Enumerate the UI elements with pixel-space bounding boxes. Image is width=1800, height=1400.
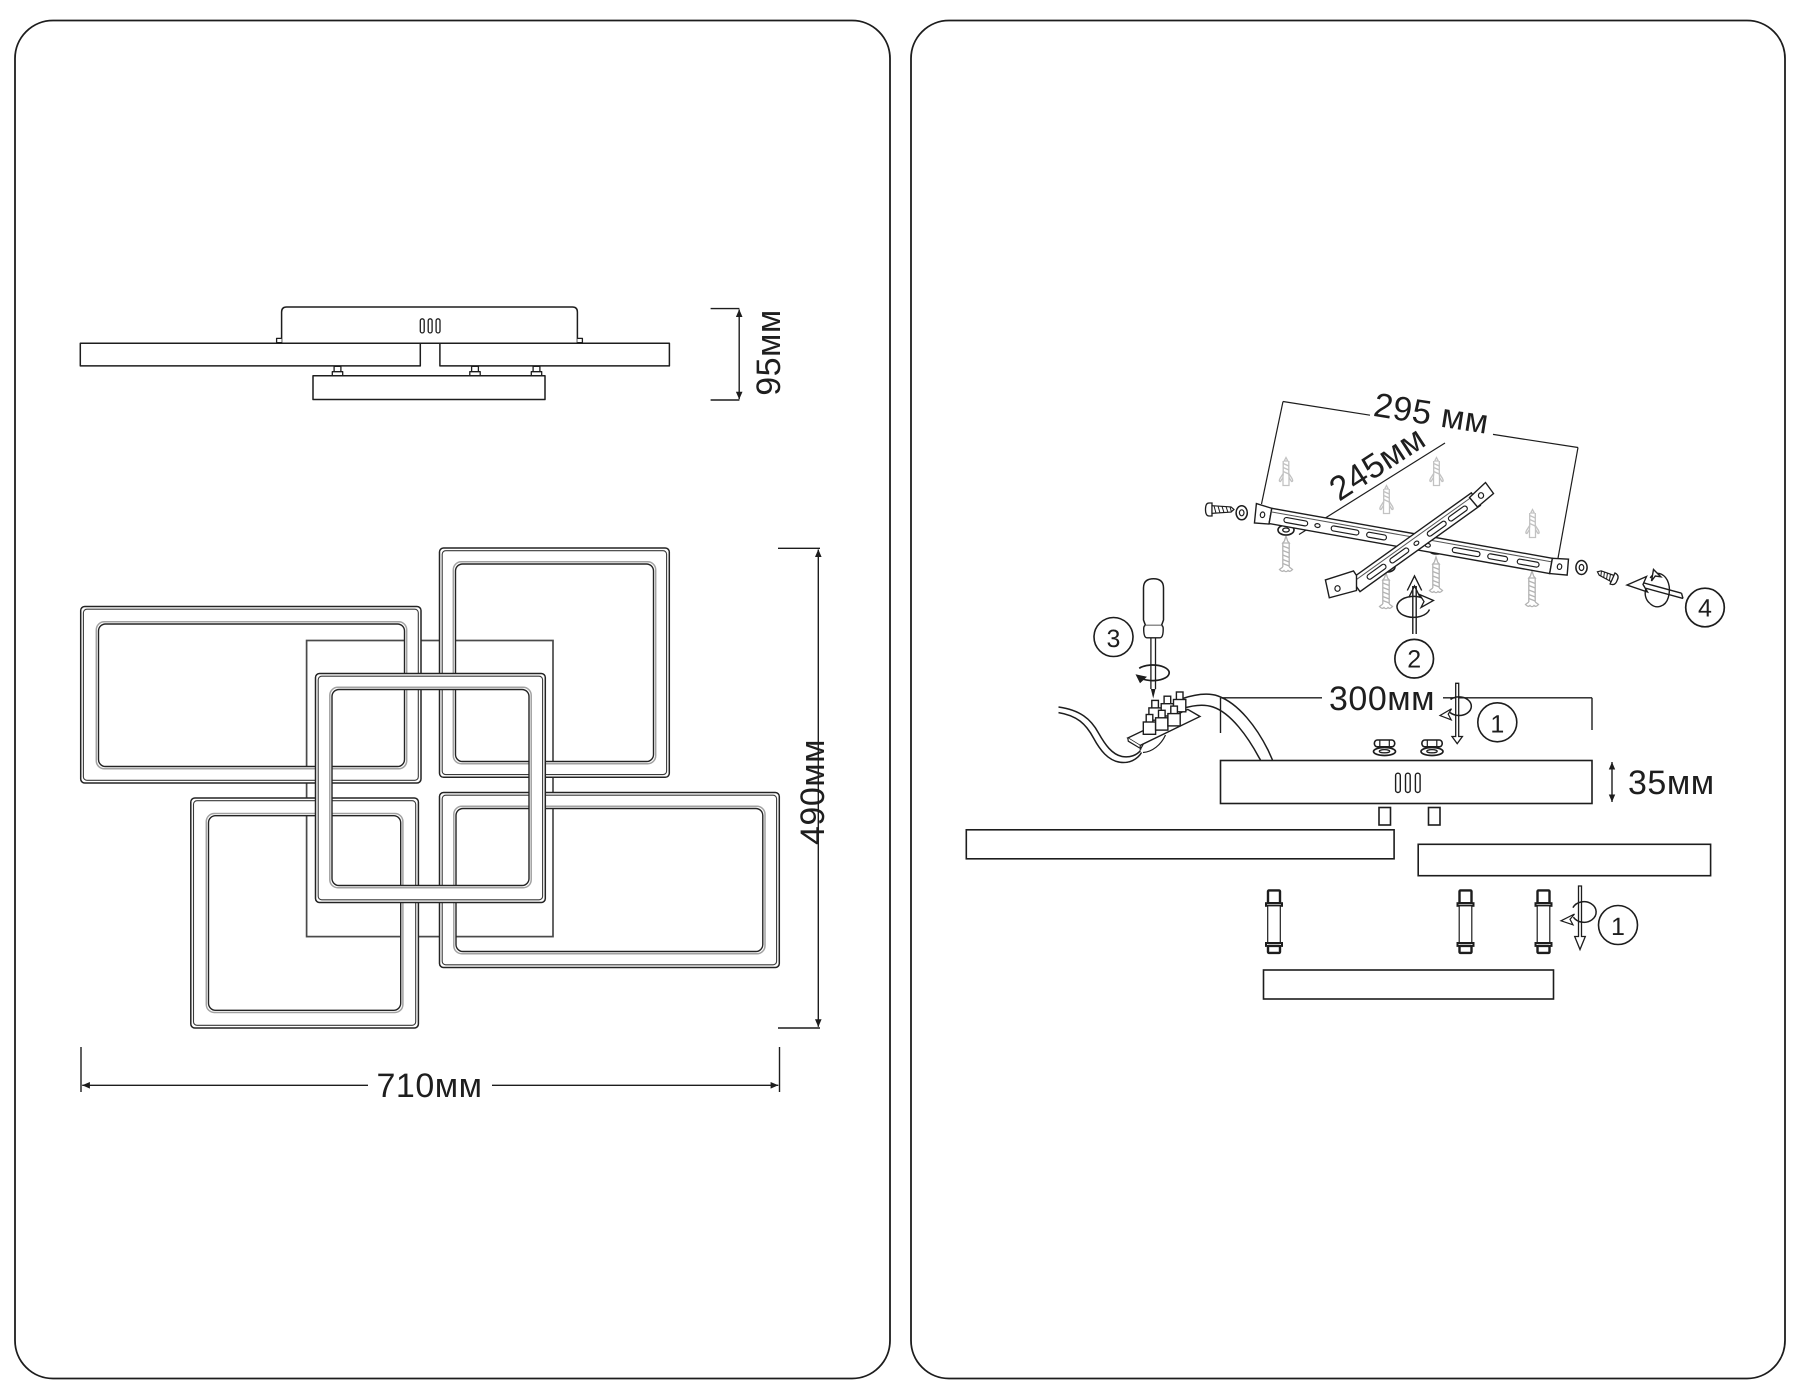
svg-text:3: 3 — [1107, 625, 1121, 653]
svg-text:490мм: 490мм — [794, 739, 832, 845]
svg-text:2: 2 — [1407, 646, 1421, 674]
svg-text:4: 4 — [1698, 595, 1712, 623]
svg-text:300мм: 300мм — [1329, 680, 1435, 718]
svg-text:1: 1 — [1490, 710, 1504, 738]
svg-text:95мм: 95мм — [750, 309, 788, 396]
svg-text:1: 1 — [1611, 913, 1625, 941]
svg-text:710мм: 710мм — [377, 1067, 483, 1105]
svg-text:35мм: 35мм — [1628, 764, 1715, 802]
